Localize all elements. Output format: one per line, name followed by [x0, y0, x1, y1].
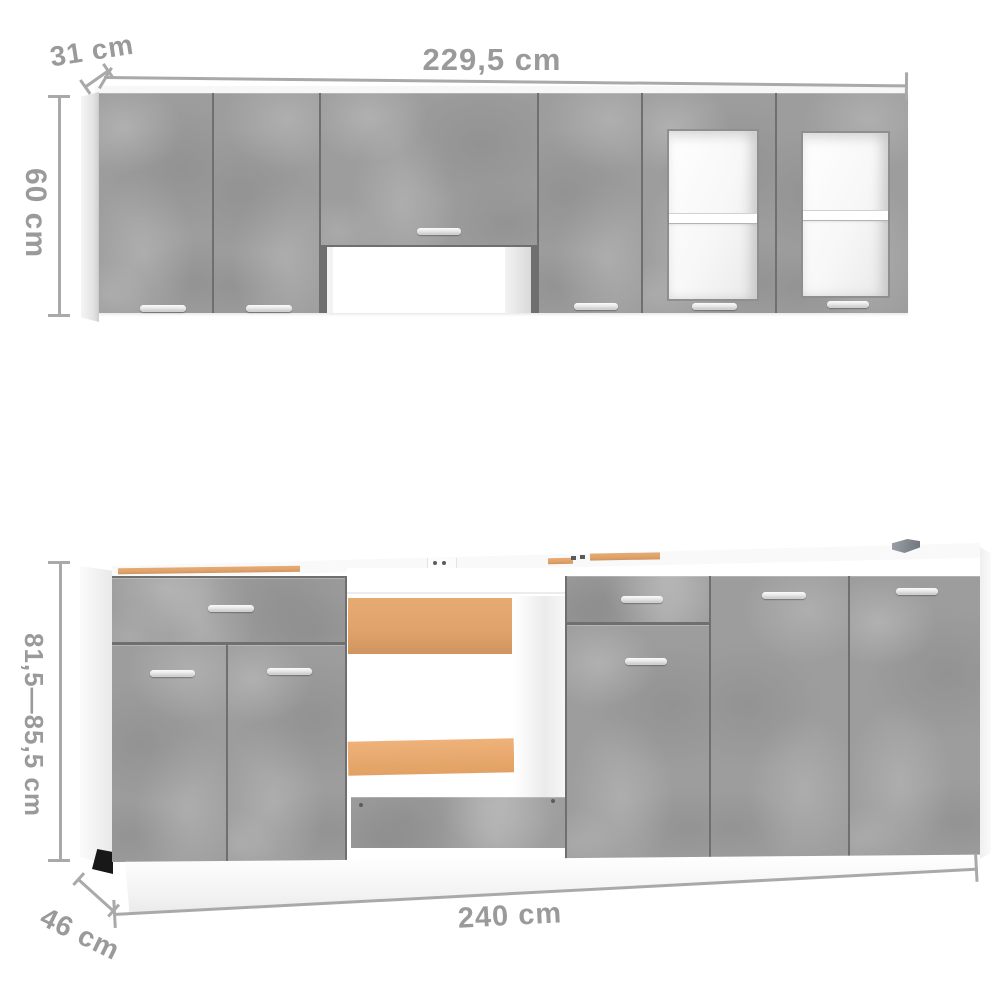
base-door-1b	[228, 645, 345, 862]
upper-height-dimension-line	[58, 96, 61, 317]
base-cabinet-right-side-edge	[980, 547, 991, 859]
wall-cabinet-fronts	[99, 93, 908, 313]
base-cabinet-fronts	[112, 576, 980, 862]
base-door-1a	[112, 645, 226, 862]
screw-hole	[359, 803, 363, 807]
range-hood-recess	[327, 247, 531, 313]
wall-cabinet-left-side-panel	[81, 92, 99, 322]
hinge-mark	[571, 556, 576, 560]
wall-glass-door-1	[643, 93, 775, 313]
base-door-4	[711, 576, 848, 862]
chipboard-top-edge	[590, 552, 660, 560]
product-image: 31 cm 229,5 cm 60 cm 81,5—85,5 cm 240 cm…	[0, 0, 1000, 1000]
screw-hole	[551, 799, 555, 803]
base-cabinet-left-side-panel	[80, 566, 112, 866]
base-door-5	[850, 576, 980, 862]
door-handle	[140, 305, 186, 312]
recess-left-wall	[327, 247, 333, 313]
dimension-cap	[48, 561, 70, 564]
dimension-cap	[48, 95, 70, 98]
cavity-back-panel-bottom	[348, 738, 515, 775]
door-handle	[827, 301, 869, 308]
door-handle	[896, 588, 938, 595]
chipboard-top-edge	[548, 558, 573, 564]
drawer-handle	[621, 596, 663, 603]
hinge-mark	[580, 555, 585, 559]
lower-depth-label: 46 cm	[20, 895, 140, 973]
dimension-cap	[48, 314, 70, 317]
screw-hole	[433, 561, 437, 565]
upper-width-label: 229,5 cm	[382, 44, 602, 75]
lower-width-label: 240 cm	[449, 899, 570, 934]
recess-right-wall	[505, 247, 531, 313]
glass-shelf	[669, 213, 757, 224]
oven-base-drawer	[351, 797, 565, 848]
oven-housing-cavity	[347, 568, 565, 862]
door-handle	[246, 305, 292, 312]
wall-door-3	[539, 93, 641, 313]
door-handle	[417, 228, 461, 235]
lower-depth-dimension-line	[77, 878, 115, 912]
dimension-cap	[48, 859, 70, 862]
door-handle	[762, 592, 806, 599]
upper-height-label: 60 cm	[20, 153, 50, 273]
door-handle	[625, 658, 667, 665]
upper-depth-label: 31 cm	[31, 28, 154, 74]
lower-height-label: 81,5—85,5 cm	[21, 600, 47, 850]
cavity-back-panel-top	[348, 598, 512, 654]
wall-hood-cabinet-door	[321, 93, 537, 245]
screw-hole	[442, 561, 446, 565]
cavity-right-inner-wall	[514, 596, 565, 797]
wall-door-1	[99, 93, 212, 313]
drawer-handle	[208, 605, 254, 612]
glass-pane	[667, 129, 759, 301]
wall-door-2	[214, 93, 319, 313]
glass-pane	[801, 131, 890, 298]
door-handle	[692, 303, 737, 310]
door-handle	[267, 668, 312, 675]
door-handle	[150, 670, 195, 677]
cavity-top-rail-line	[347, 592, 565, 594]
door-handle	[574, 303, 618, 310]
glass-shelf	[803, 210, 888, 221]
wall-glass-door-2	[777, 93, 908, 313]
lower-height-dimension-line	[59, 562, 62, 862]
